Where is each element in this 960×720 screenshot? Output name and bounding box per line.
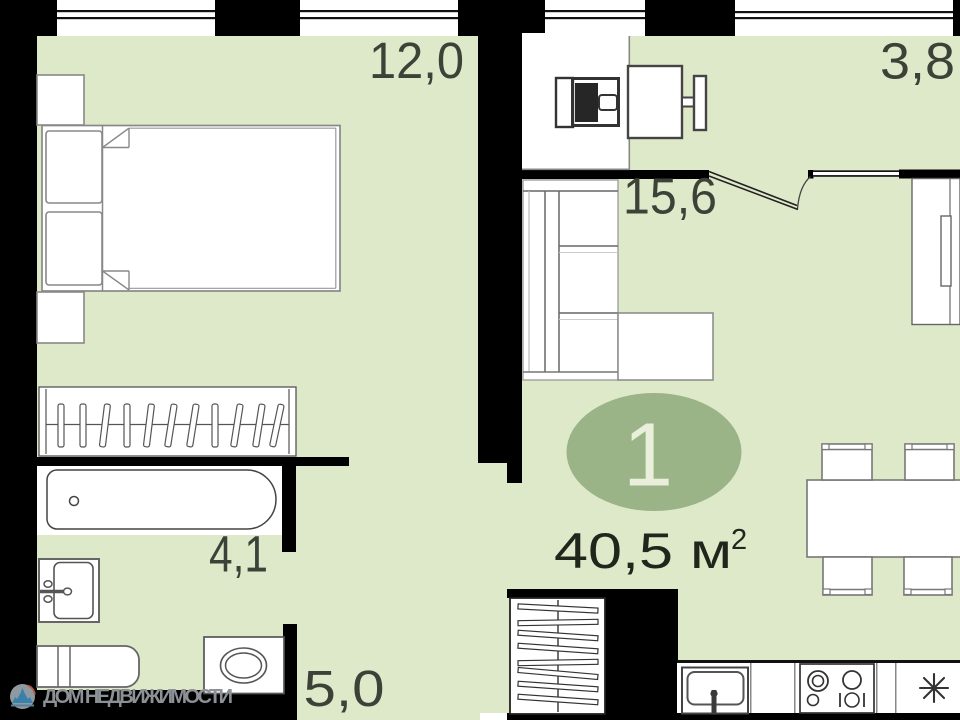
svg-text:40,5 м: 40,5 м: [554, 523, 732, 579]
svg-text:15,6: 15,6: [623, 168, 717, 225]
svg-text:4,1: 4,1: [209, 526, 268, 583]
svg-text:ДОМ НЕДВИЖИМОСТИ: ДОМ НЕДВИЖИМОСТИ: [43, 686, 233, 708]
svg-text:3,8: 3,8: [880, 33, 955, 90]
svg-text:1: 1: [623, 406, 673, 506]
svg-text:5,0: 5,0: [304, 660, 385, 717]
svg-text:2: 2: [731, 524, 747, 556]
svg-text:12,0: 12,0: [369, 32, 464, 89]
